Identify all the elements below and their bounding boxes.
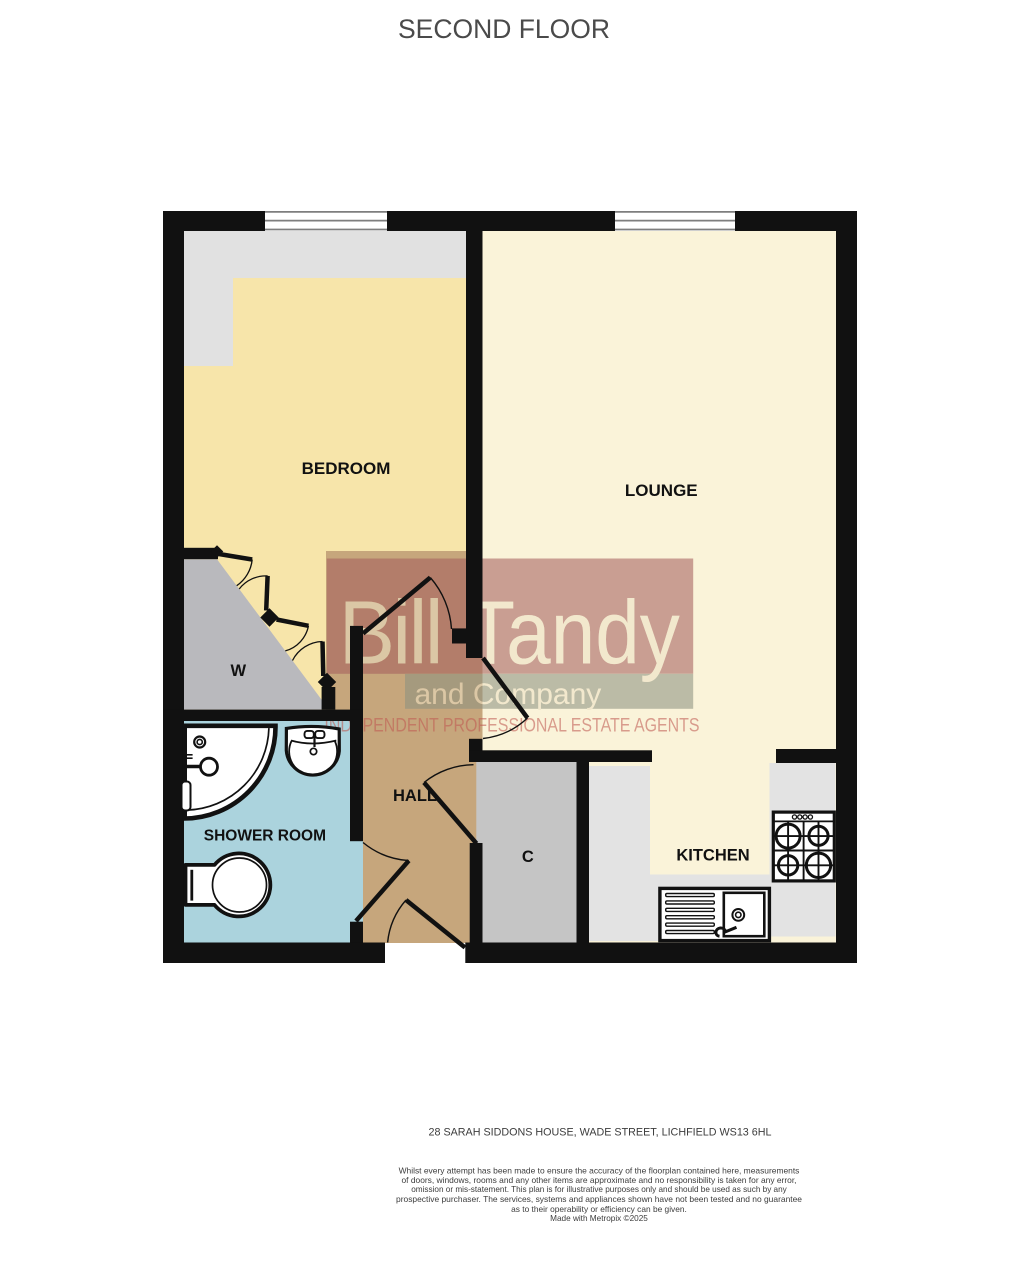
svg-text:of doors, windows, rooms and a: of doors, windows, rooms and any other i…	[402, 1176, 797, 1185]
svg-text:KITCHEN: KITCHEN	[676, 847, 749, 865]
svg-text:LOUNGE: LOUNGE	[625, 481, 698, 500]
svg-text:28 SARAH SIDDONS HOUSE, WADE S: 28 SARAH SIDDONS HOUSE, WADE STREET, LIC…	[429, 1127, 772, 1139]
svg-text:as to their operability or eff: as to their operability or efficiency ca…	[511, 1205, 687, 1214]
svg-text:HALL: HALL	[393, 787, 437, 805]
svg-text:Tandy: Tandy	[466, 583, 680, 683]
svg-text:prospective purchaser. The ser: prospective purchaser. The services, sys…	[396, 1195, 802, 1204]
svg-text:BEDROOM: BEDROOM	[302, 459, 391, 478]
svg-text:SHOWER ROOM: SHOWER ROOM	[204, 827, 326, 844]
svg-text:Made with Metropix ©2025: Made with Metropix ©2025	[550, 1214, 648, 1223]
svg-text:SECOND FLOOR: SECOND FLOOR	[398, 14, 610, 44]
svg-text:INDEPENDENT PROFESSIONAL ESTAT: INDEPENDENT PROFESSIONAL ESTATE AGENTS	[324, 714, 699, 736]
svg-text:omission or mis-statement. Thi: omission or mis-statement. This plan is …	[411, 1185, 787, 1194]
svg-text:W: W	[231, 662, 247, 680]
svg-text:Whilst every attempt has been: Whilst every attempt has been made to en…	[399, 1167, 800, 1176]
svg-text:C: C	[522, 848, 534, 866]
